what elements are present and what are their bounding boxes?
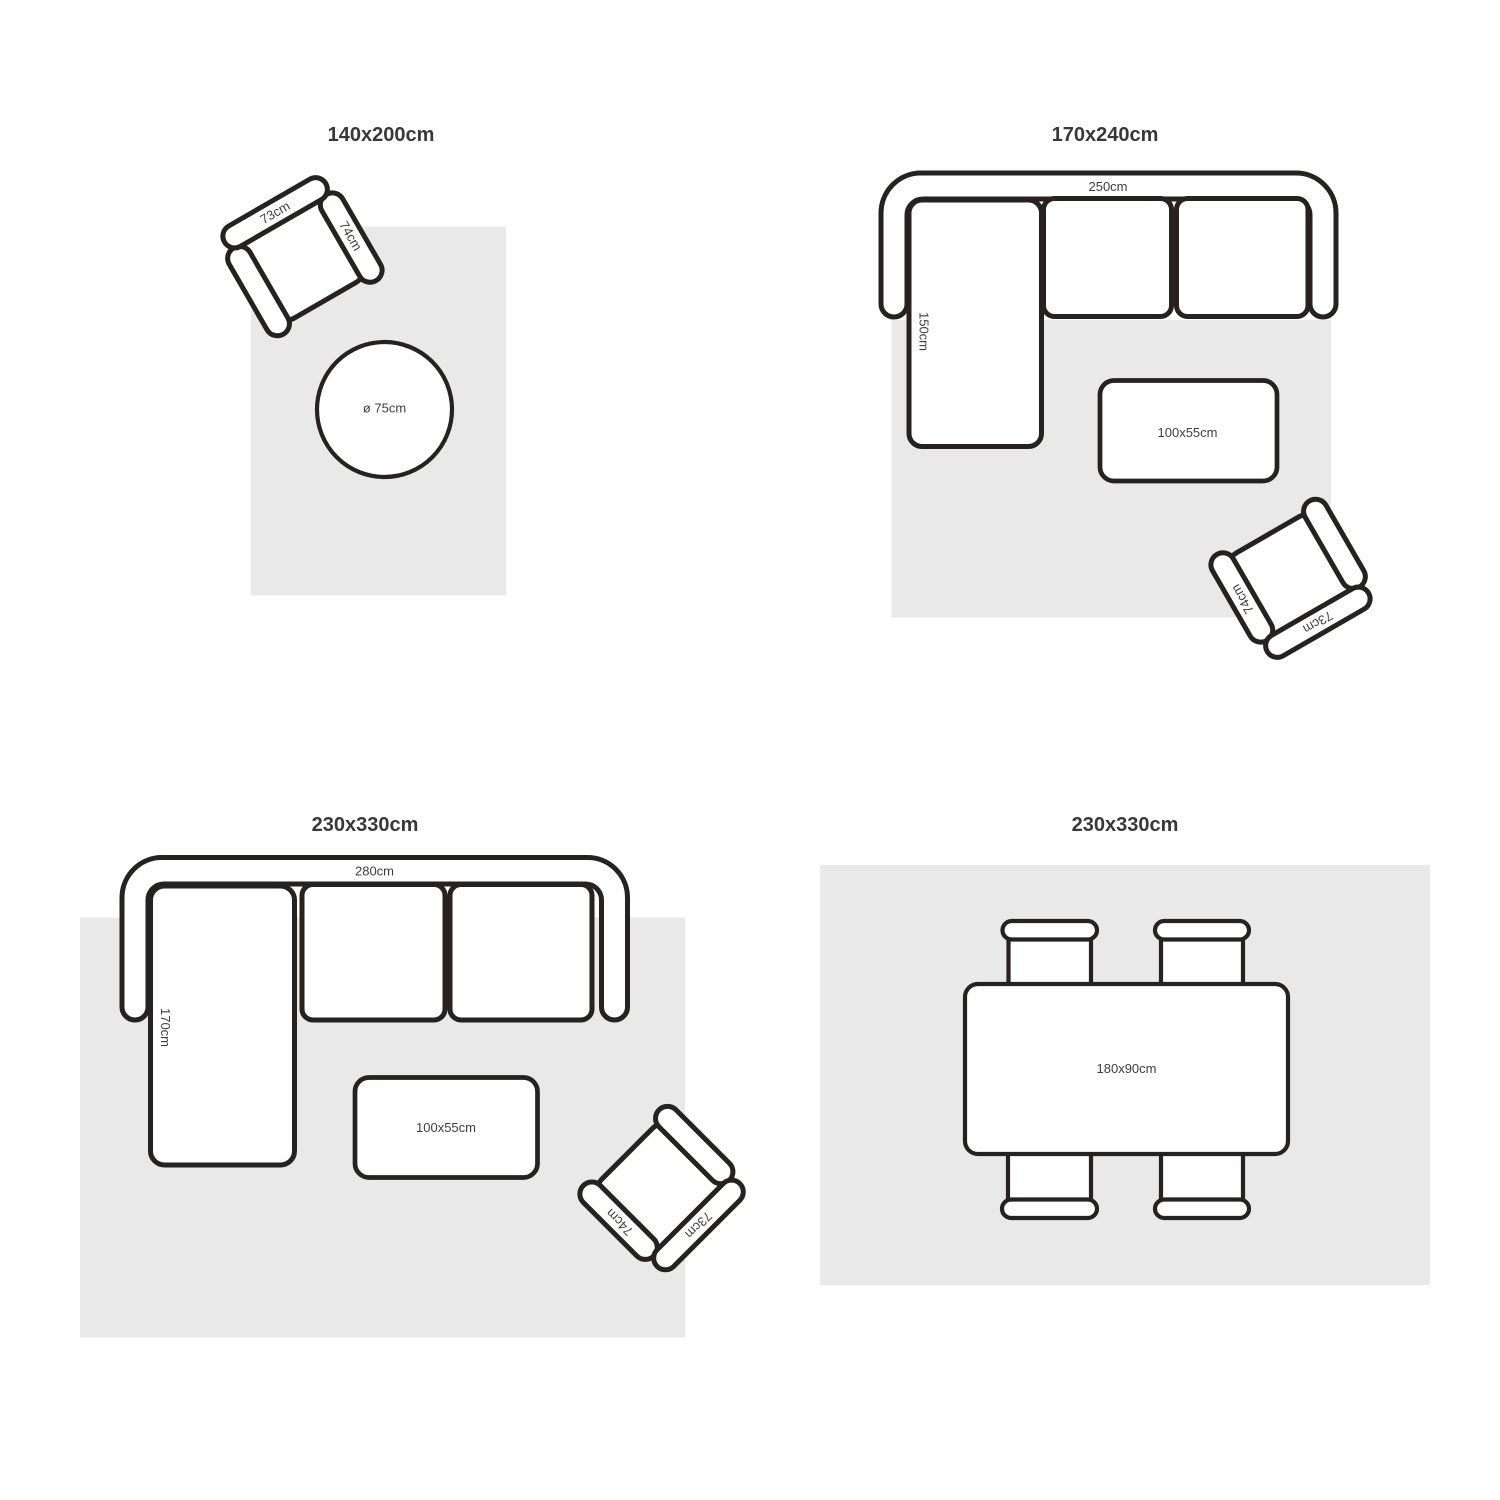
svg-text:140x200cm: 140x200cm: [328, 124, 435, 146]
svg-text:100x55cm: 100x55cm: [416, 1120, 476, 1135]
svg-text:250cm: 250cm: [1088, 179, 1127, 194]
svg-text:230x330cm: 230x330cm: [312, 814, 419, 836]
svg-text:180x90cm: 180x90cm: [1097, 1061, 1157, 1076]
svg-text:280cm: 280cm: [355, 864, 394, 879]
svg-text:100x55cm: 100x55cm: [1158, 425, 1218, 440]
svg-text:ø 75cm: ø 75cm: [363, 401, 406, 416]
svg-text:230x330cm: 230x330cm: [1072, 814, 1179, 836]
svg-text:170cm: 170cm: [158, 1008, 173, 1047]
svg-text:150cm: 150cm: [917, 312, 932, 351]
svg-text:170x240cm: 170x240cm: [1052, 124, 1159, 146]
